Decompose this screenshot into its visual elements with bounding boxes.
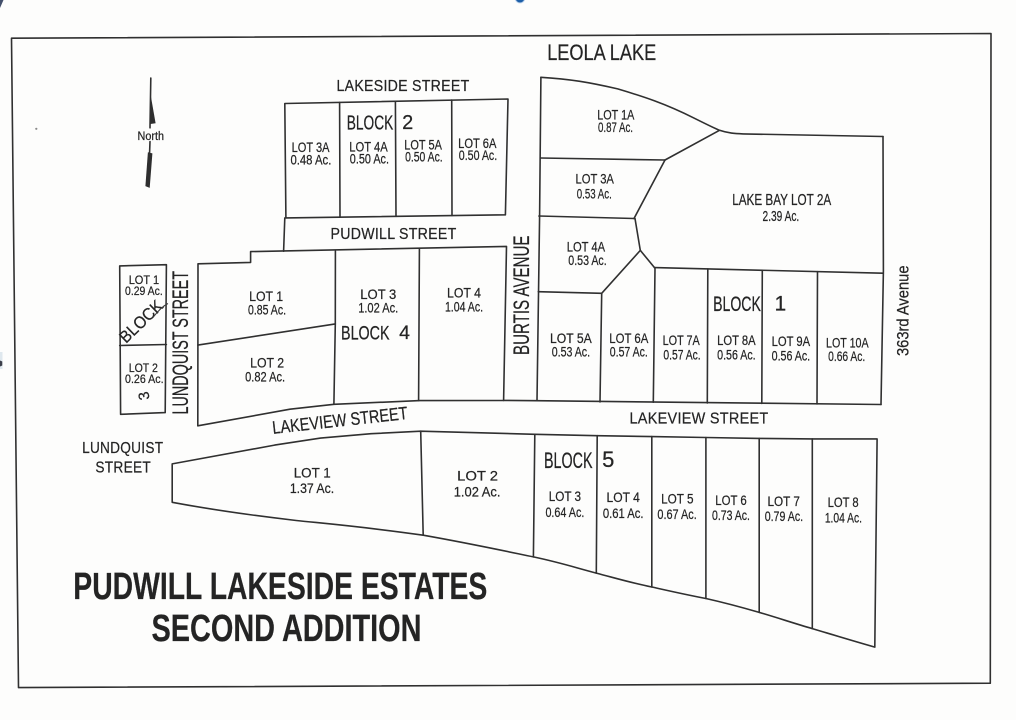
svg-text:BLOCK: BLOCK bbox=[347, 112, 394, 134]
svg-text:0.85 Ac.: 0.85 Ac. bbox=[248, 303, 286, 318]
svg-text:LOT 9A: LOT 9A bbox=[772, 334, 811, 349]
svg-text:0.56 Ac.: 0.56 Ac. bbox=[772, 349, 811, 364]
svg-text:0.57 Ac.: 0.57 Ac. bbox=[663, 347, 700, 362]
svg-text:LOT 7A: LOT 7A bbox=[663, 333, 701, 348]
svg-text:PUDWILL LAKESIDE ESTATES: PUDWILL LAKESIDE ESTATES bbox=[73, 566, 487, 608]
svg-text:LOT 8A: LOT 8A bbox=[717, 333, 756, 348]
svg-text:LOT 8: LOT 8 bbox=[828, 495, 859, 510]
svg-text:SECOND ADDITION: SECOND ADDITION bbox=[152, 608, 422, 650]
svg-text:LOT 5: LOT 5 bbox=[661, 492, 694, 507]
svg-text:LUNDQUIST STREET: LUNDQUIST STREET bbox=[168, 271, 193, 415]
svg-text:1: 1 bbox=[775, 292, 787, 315]
svg-text:0.66 Ac.: 0.66 Ac. bbox=[828, 349, 865, 364]
svg-text:0.53 Ac.: 0.53 Ac. bbox=[568, 253, 606, 268]
svg-text:BURTIS AVENUE: BURTIS AVENUE bbox=[509, 236, 534, 356]
svg-text:BLOCK: BLOCK bbox=[713, 293, 761, 316]
svg-text:LEOLA LAKE: LEOLA LAKE bbox=[547, 40, 656, 65]
svg-text:LOT 4: LOT 4 bbox=[607, 490, 641, 505]
svg-text:0.73 Ac.: 0.73 Ac. bbox=[712, 508, 750, 523]
svg-text:LOT 3A: LOT 3A bbox=[576, 171, 615, 186]
svg-text:2.39 Ac.: 2.39 Ac. bbox=[763, 208, 800, 225]
svg-text:LAKESIDE STREET: LAKESIDE STREET bbox=[337, 78, 470, 95]
svg-text:0.87 Ac.: 0.87 Ac. bbox=[598, 120, 633, 135]
svg-text:BLOCK: BLOCK bbox=[341, 323, 390, 345]
svg-text:0.67 Ac.: 0.67 Ac. bbox=[657, 507, 696, 522]
svg-text:BLOCK: BLOCK bbox=[544, 448, 593, 473]
svg-text:0.53 Ac.: 0.53 Ac. bbox=[552, 344, 590, 359]
svg-text:0.26 Ac.: 0.26 Ac. bbox=[125, 372, 164, 386]
svg-text:STREET: STREET bbox=[95, 460, 151, 477]
svg-text:LOT 7: LOT 7 bbox=[768, 494, 800, 509]
svg-text:0.61 Ac.: 0.61 Ac. bbox=[603, 506, 644, 521]
svg-text:0.56 Ac.: 0.56 Ac. bbox=[717, 347, 756, 362]
svg-text:0.82 Ac.: 0.82 Ac. bbox=[245, 370, 285, 385]
svg-text:LOT 2: LOT 2 bbox=[457, 469, 498, 484]
svg-text:1.02 Ac.: 1.02 Ac. bbox=[358, 301, 398, 316]
svg-text:1.37 Ac.: 1.37 Ac. bbox=[290, 481, 334, 496]
svg-text:0.48 Ac.: 0.48 Ac. bbox=[290, 152, 331, 167]
svg-text:0.64 Ac.: 0.64 Ac. bbox=[545, 505, 584, 520]
svg-text:LOT 1: LOT 1 bbox=[294, 466, 331, 481]
svg-text:1.04 Ac.: 1.04 Ac. bbox=[445, 299, 483, 314]
svg-text:LOT 3: LOT 3 bbox=[549, 489, 582, 504]
svg-text:LAKEVIEW STREET: LAKEVIEW STREET bbox=[630, 411, 769, 428]
svg-text:PUDWILL STREET: PUDWILL STREET bbox=[331, 226, 457, 243]
svg-text:LAKE BAY LOT 2A: LAKE BAY LOT 2A bbox=[732, 192, 831, 209]
svg-text:0.29 Ac.: 0.29 Ac. bbox=[125, 284, 163, 298]
svg-text:5: 5 bbox=[602, 447, 614, 472]
svg-text:0.50 Ac.: 0.50 Ac. bbox=[405, 150, 443, 165]
svg-text:North: North bbox=[138, 131, 165, 143]
svg-text:0.50 Ac.: 0.50 Ac. bbox=[350, 152, 389, 167]
svg-text:LUNDQUIST: LUNDQUIST bbox=[82, 440, 163, 457]
svg-text:4: 4 bbox=[399, 322, 410, 344]
svg-text:0.57 Ac.: 0.57 Ac. bbox=[610, 344, 648, 359]
svg-text:LOT 6: LOT 6 bbox=[715, 493, 747, 508]
svg-text:2: 2 bbox=[402, 112, 413, 134]
svg-text:0.50 Ac.: 0.50 Ac. bbox=[459, 148, 497, 163]
svg-text:LOT 2: LOT 2 bbox=[250, 356, 284, 371]
svg-text:1.02 Ac.: 1.02 Ac. bbox=[454, 485, 501, 500]
svg-text:0.79 Ac.: 0.79 Ac. bbox=[765, 509, 803, 524]
svg-text:363rd Avenue: 363rd Avenue bbox=[893, 266, 912, 357]
svg-text:0.53 Ac.: 0.53 Ac. bbox=[577, 187, 612, 202]
svg-text:1.04 Ac.: 1.04 Ac. bbox=[825, 510, 862, 525]
